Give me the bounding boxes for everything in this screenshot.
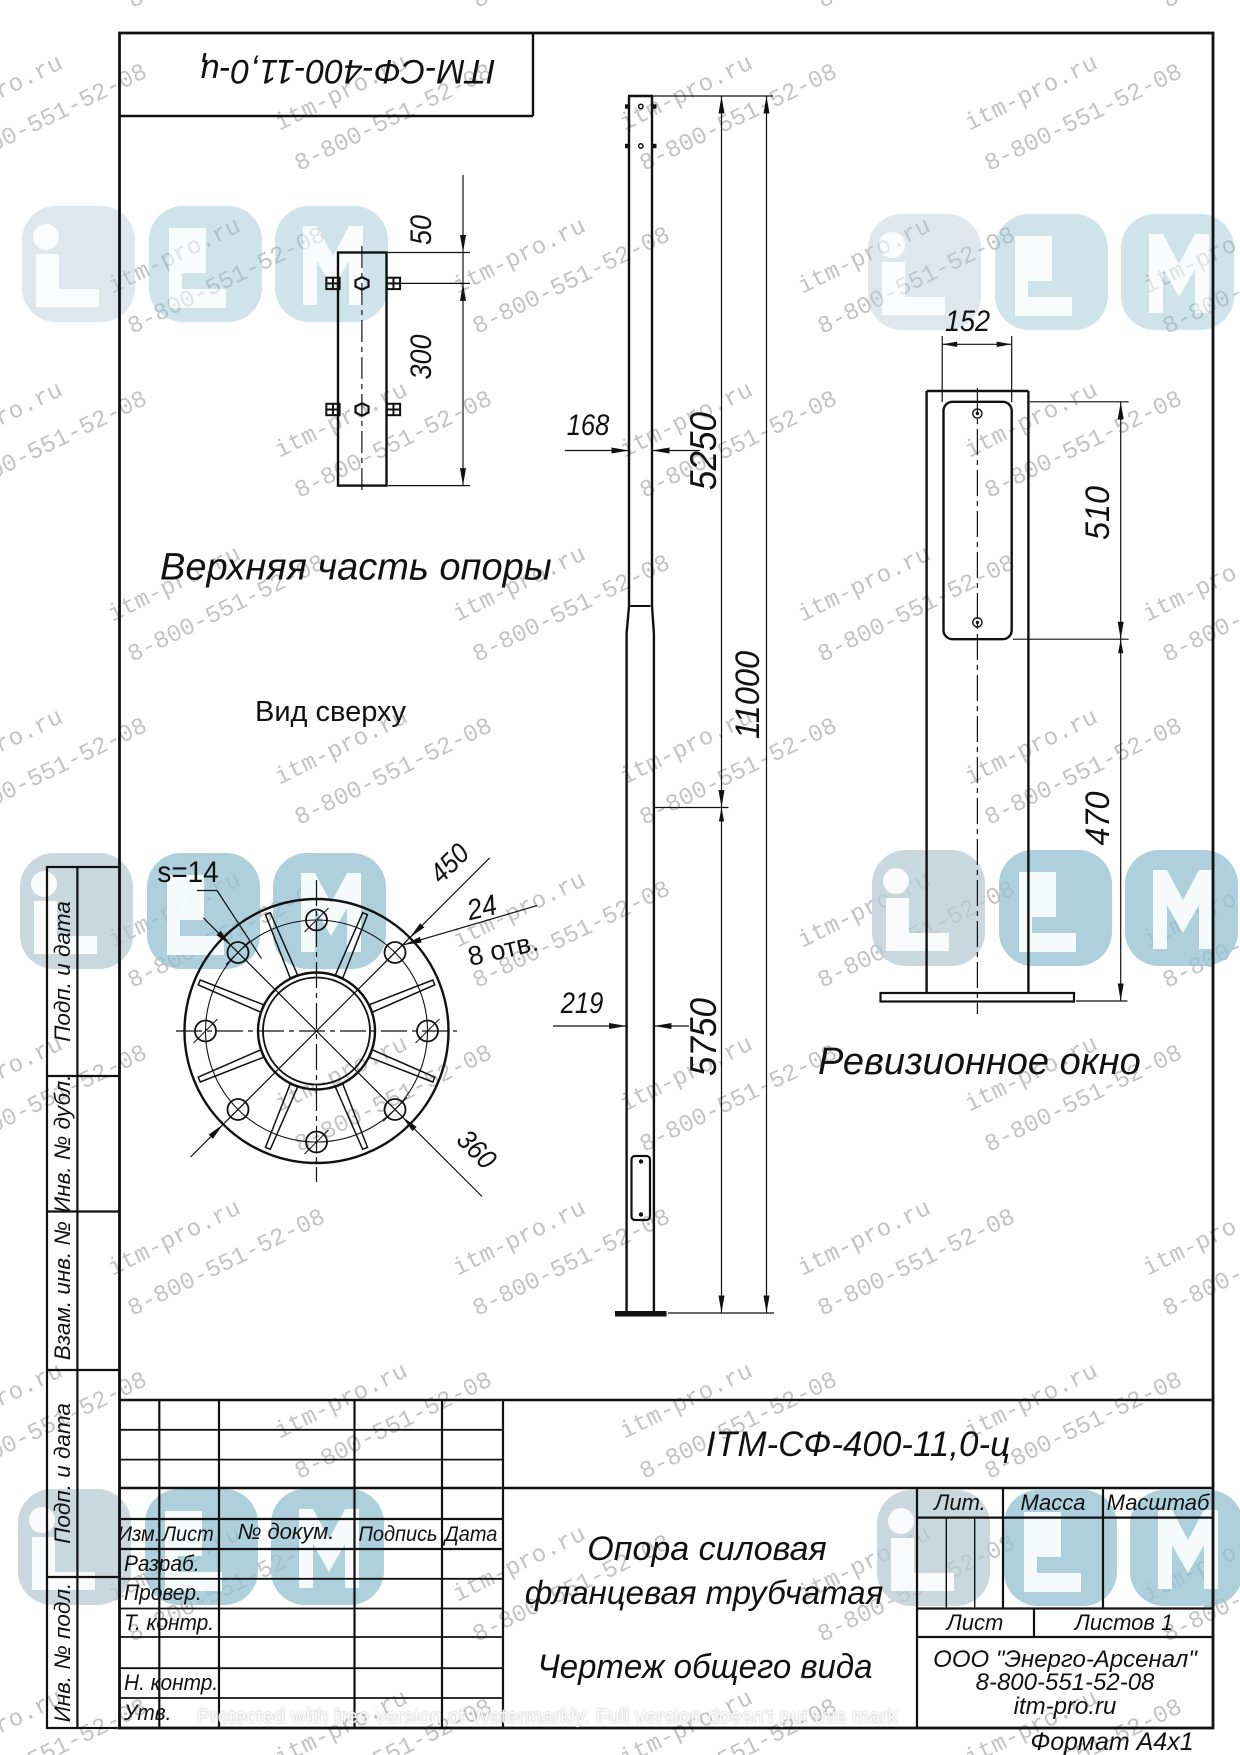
svg-text:Масштаб: Масштаб (1107, 1490, 1211, 1515)
svg-text:Провер.: Провер. (124, 1581, 202, 1606)
svg-text:Инв. № подл.: Инв. № подл. (50, 1583, 75, 1723)
svg-text:470: 470 (1079, 791, 1117, 845)
svg-text:Вид сверху: Вид сверху (255, 696, 407, 728)
svg-text:5750: 5750 (682, 998, 724, 1076)
svg-text:Дата: Дата (443, 1523, 498, 1547)
svg-text:510: 510 (1079, 486, 1117, 540)
svg-text:11000: 11000 (729, 650, 767, 739)
svg-text:Ревизионное окно: Ревизионное окно (818, 1041, 1141, 1083)
svg-text:Подп. и дата: Подп. и дата (50, 901, 75, 1042)
svg-text:168: 168 (567, 408, 610, 441)
svg-text:5250: 5250 (682, 412, 724, 490)
svg-text:s=14: s=14 (157, 856, 218, 889)
svg-text:Формат А4х1: Формат А4х1 (1030, 1728, 1193, 1755)
svg-text:Изм.: Изм. (118, 1523, 161, 1547)
svg-text:Взам. инв. №: Взам. инв. № (50, 1221, 75, 1360)
svg-text:219: 219 (560, 986, 603, 1019)
svg-text:300: 300 (405, 334, 439, 379)
svg-text:8 отв.: 8 отв. (465, 927, 541, 972)
svg-text:Н. контр.: Н. контр. (124, 1671, 218, 1696)
svg-text:50: 50 (405, 215, 439, 245)
svg-text:№ докум.: № докум. (238, 1519, 335, 1544)
svg-text:360: 360 (451, 1123, 503, 1175)
svg-text:Лист: Лист (945, 1610, 1004, 1635)
svg-text:Опора силовая: Опора силовая (587, 1530, 826, 1568)
svg-text:Чертеж общего вида: Чертеж общего вида (538, 1649, 873, 1687)
svg-text:Масса: Масса (1020, 1490, 1085, 1515)
svg-text:Верхняя часть опоры: Верхняя часть опоры (160, 547, 552, 589)
svg-text:ІТМ-СФ-400-11,0-ц: ІТМ-СФ-400-11,0-ц (706, 1425, 1010, 1464)
svg-text:Утв.: Утв. (123, 1701, 171, 1726)
svg-text:Разраб.: Разраб. (124, 1552, 200, 1577)
svg-text:Лист: Лист (160, 1523, 213, 1547)
svg-text:ІТМ-СФ-400-11,0-ц: ІТМ-СФ-400-11,0-ц (200, 52, 496, 90)
svg-text:Инв. № дубл.: Инв. № дубл. (50, 1075, 75, 1213)
svg-text:Т. контр.: Т. контр. (124, 1611, 214, 1636)
svg-text:24: 24 (463, 888, 500, 926)
svg-text:фланцевая трубчатая: фланцевая трубчатая (525, 1574, 883, 1611)
svg-text:8-800-551-52-08: 8-800-551-52-08 (976, 1669, 1155, 1696)
svg-text:Листов 1: Листов 1 (1073, 1610, 1173, 1635)
svg-text:Подпись: Подпись (358, 1523, 437, 1547)
svg-text:Лит.: Лит. (932, 1490, 986, 1515)
svg-text:Подп. и дата: Подп. и дата (50, 1403, 75, 1544)
svg-text:152: 152 (945, 305, 990, 339)
svg-text:itm-pro.ru: itm-pro.ru (1014, 1693, 1117, 1720)
svg-text:450: 450 (423, 837, 475, 889)
